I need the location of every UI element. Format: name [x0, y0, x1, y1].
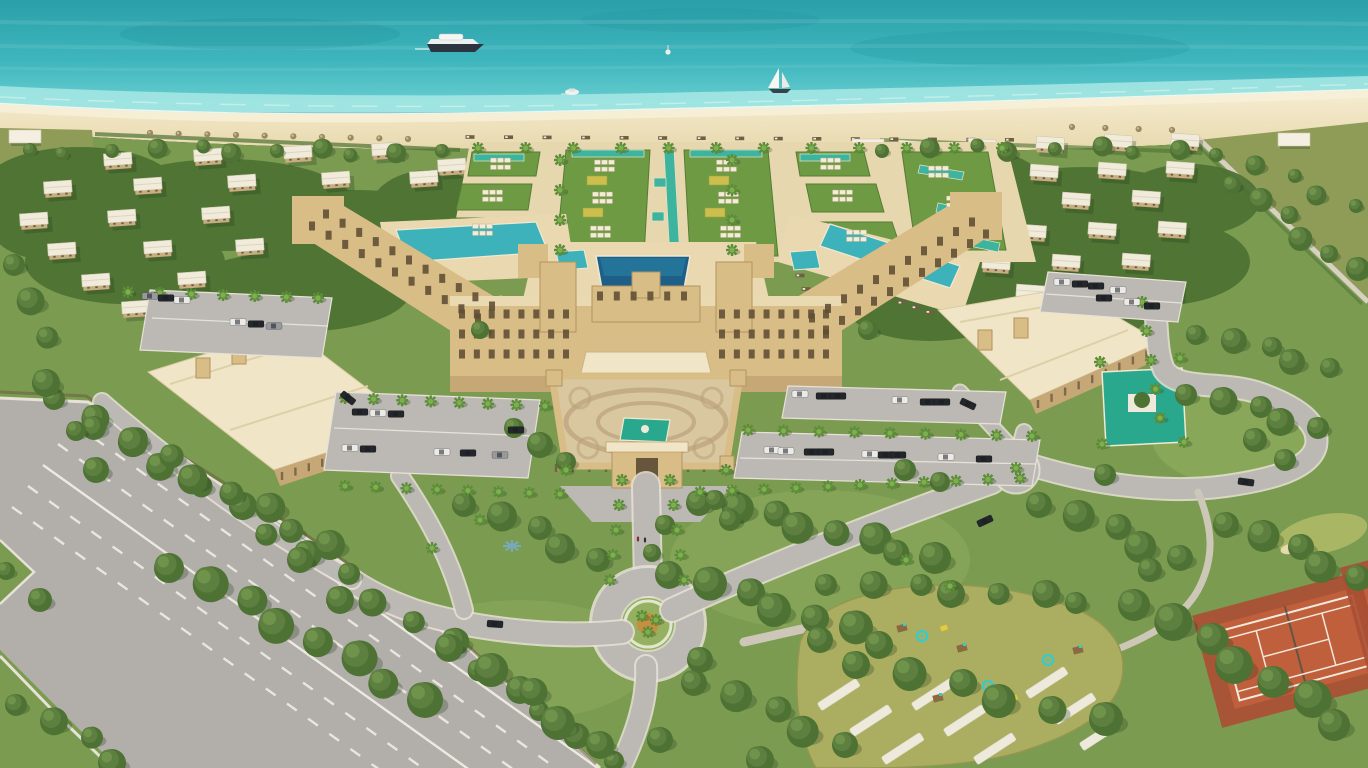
colonnade-column	[1064, 388, 1066, 396]
hotel-window	[734, 350, 740, 359]
hotel-window	[749, 350, 755, 359]
sunbed-cluster	[774, 137, 783, 141]
hotel-window	[841, 294, 847, 303]
flowerbed	[705, 208, 725, 217]
beach-umbrella	[204, 131, 210, 137]
car	[266, 323, 282, 330]
hotel-window	[597, 292, 603, 301]
sunbed-cluster	[620, 136, 629, 140]
car	[920, 399, 936, 406]
hotel-window	[533, 310, 539, 319]
car	[792, 391, 808, 398]
car	[1124, 299, 1140, 306]
colonnade-column	[1132, 356, 1134, 364]
car	[158, 295, 174, 302]
pedestrian	[637, 537, 639, 542]
car	[934, 399, 950, 406]
beach-umbrella	[147, 130, 153, 136]
car	[370, 410, 386, 417]
beach-umbrella	[1102, 125, 1108, 131]
hotel-window	[614, 292, 620, 301]
car	[1144, 303, 1160, 310]
axis-pool	[654, 178, 666, 187]
hotel-window	[309, 222, 315, 231]
colonnade-column	[294, 468, 296, 476]
hotel-window	[873, 275, 879, 284]
hotel-window	[855, 306, 861, 315]
wave-streak	[0, 46, 1368, 48]
colonnade-column	[1037, 400, 1039, 408]
sunbed-cluster	[926, 310, 935, 314]
villa	[1165, 161, 1198, 183]
car	[1072, 281, 1088, 288]
ballroom-tower	[196, 358, 210, 378]
beach-umbrella	[233, 132, 239, 138]
hotel-tower-east	[716, 262, 752, 332]
hotel-window	[887, 287, 893, 296]
flowerbed	[587, 176, 607, 185]
hotel-window	[719, 350, 725, 359]
hotel-window	[406, 256, 412, 265]
colonnade-column	[1091, 375, 1093, 383]
hotel-window	[749, 330, 755, 339]
hotel-window	[631, 292, 637, 301]
hotel-window	[518, 330, 524, 339]
colonnade-column	[321, 459, 323, 467]
hotel-window	[857, 285, 863, 294]
west-wing-pavilion	[292, 196, 344, 244]
courtyard-corner-tower	[546, 370, 562, 386]
hotel-window	[905, 256, 911, 265]
hotel-window	[953, 227, 959, 236]
villa	[1087, 222, 1120, 244]
hotel-window	[375, 258, 381, 267]
hotel-window	[504, 310, 510, 319]
hotel-window	[459, 330, 465, 339]
hotel-window	[423, 265, 429, 274]
hotel-window	[764, 330, 770, 339]
pedestrian	[644, 538, 646, 543]
hotel-window	[340, 219, 346, 228]
car	[230, 319, 246, 326]
axis-pool	[652, 212, 664, 221]
hotel-window	[392, 268, 398, 277]
beach-umbrella	[405, 136, 411, 142]
hotel-window	[839, 316, 845, 325]
colonnade-column	[1050, 394, 1052, 402]
car	[818, 449, 834, 456]
hotel-window	[793, 310, 799, 319]
hotel-window	[903, 278, 909, 287]
villa	[1061, 192, 1094, 214]
hotel-window	[489, 302, 495, 311]
sunbed-cluster	[697, 136, 706, 140]
hotel-window	[889, 266, 895, 275]
hotel-window	[967, 239, 973, 248]
hotel-window	[458, 304, 464, 313]
car	[1096, 295, 1112, 302]
hotel-window	[983, 230, 989, 239]
panel-pool	[572, 150, 644, 157]
hotel-window	[809, 314, 815, 323]
car	[976, 456, 992, 463]
hotel-window	[548, 330, 554, 339]
hotel-window	[489, 310, 495, 319]
hotel-window	[563, 350, 569, 359]
hotel-window	[778, 310, 784, 319]
car	[388, 411, 404, 418]
car	[342, 445, 358, 452]
island-tree	[1134, 392, 1150, 408]
beach-umbrella	[1069, 124, 1075, 130]
sunbed-cluster	[912, 306, 921, 310]
hotel-window	[937, 237, 943, 246]
hotel-window	[793, 350, 799, 359]
sunbed-cluster	[504, 135, 513, 139]
hotel-window	[439, 274, 445, 283]
car	[1054, 279, 1070, 286]
car	[890, 452, 906, 459]
hotel-window	[504, 350, 510, 359]
hotel-window	[764, 310, 770, 319]
hotel-window	[425, 286, 431, 295]
car	[892, 397, 908, 404]
hotel-window	[919, 268, 925, 277]
hotel-window	[823, 326, 829, 335]
hotel-window	[778, 330, 784, 339]
beach-umbrella	[176, 131, 182, 137]
car	[492, 452, 508, 459]
beach-umbrella	[290, 133, 296, 139]
hotel-window	[681, 292, 687, 301]
car	[434, 449, 450, 456]
hotel-window	[778, 350, 784, 359]
hotel-window	[823, 350, 829, 359]
hotel-window	[563, 330, 569, 339]
agave-plant	[503, 540, 521, 552]
hotel-window	[533, 330, 539, 339]
hotel-window	[326, 231, 332, 240]
hotel-window	[825, 304, 831, 313]
car	[862, 451, 878, 458]
hotel-window	[921, 246, 927, 255]
sunbed-cluster	[796, 274, 805, 278]
villa	[1131, 190, 1164, 212]
car	[460, 450, 476, 457]
hotel-window	[518, 350, 524, 359]
hotel-window	[808, 350, 814, 359]
sunbed-cluster	[543, 136, 552, 140]
ballroom-tower	[1014, 318, 1028, 338]
hotel-window	[533, 350, 539, 359]
hotel-window	[356, 228, 362, 237]
resort-aerial-rendering: Aerial 3D rendering of a beachfront hote…	[0, 0, 1368, 768]
villa	[1157, 221, 1190, 243]
flowerbed	[583, 208, 603, 217]
hotel-window	[969, 218, 975, 227]
hotel-window	[459, 350, 465, 359]
hotel-window	[951, 249, 957, 258]
beach-umbrella	[262, 133, 268, 139]
hotel-window	[518, 310, 524, 319]
gatehouse-roof	[606, 442, 688, 452]
sunbed-cluster	[658, 136, 667, 140]
colonnade-column	[1077, 381, 1079, 389]
sunbed-cluster	[889, 137, 898, 141]
car	[830, 393, 846, 400]
hotel-window	[373, 237, 379, 246]
villa	[1121, 253, 1154, 275]
car	[1110, 287, 1126, 294]
beach-pavilion	[9, 130, 41, 146]
panel-pool	[690, 150, 762, 157]
east-kids-pool	[790, 250, 820, 270]
sunbed-cluster	[1005, 138, 1014, 142]
sunbed-cluster	[581, 136, 590, 140]
sunbed-cluster	[735, 137, 744, 141]
hotel-window	[647, 292, 653, 301]
hotel-tower-west	[540, 262, 576, 332]
fountain-ornament	[641, 425, 649, 433]
car	[248, 321, 264, 328]
villa	[1097, 162, 1130, 184]
sunbed-cluster	[898, 301, 907, 305]
hotel-window	[548, 310, 554, 319]
beach-umbrella	[1169, 127, 1175, 133]
car	[508, 427, 524, 434]
car	[352, 409, 368, 416]
car	[764, 447, 780, 454]
hotel-window	[749, 310, 755, 319]
courtyard-corner-tower	[730, 370, 746, 386]
hotel-window	[409, 277, 415, 286]
car	[360, 446, 376, 453]
hotel-window	[504, 330, 510, 339]
beach-umbrella	[376, 135, 382, 141]
villa	[1029, 164, 1062, 186]
sunbed-cluster	[812, 137, 821, 141]
car	[816, 393, 832, 400]
hotel-window	[764, 350, 770, 359]
hotel-window	[935, 258, 941, 267]
car	[778, 448, 794, 455]
beach-umbrella	[348, 135, 354, 141]
hotel-window	[793, 330, 799, 339]
colonnade-column	[308, 463, 310, 471]
car	[142, 293, 158, 300]
hotel-window	[389, 246, 395, 255]
hotel-window	[474, 350, 480, 359]
car	[804, 449, 820, 456]
ballroom-tower	[978, 330, 992, 350]
sunbed-cluster	[466, 135, 475, 139]
car	[487, 620, 503, 628]
car	[938, 454, 954, 461]
beach-pavilion	[1278, 133, 1310, 149]
colonnade-column	[1118, 363, 1120, 371]
hotel-window	[734, 310, 740, 319]
hotel-window	[548, 350, 554, 359]
beach-umbrella	[1136, 126, 1142, 132]
hotel-window	[719, 330, 725, 339]
hotel-window	[808, 330, 814, 339]
hotel-window	[456, 283, 462, 292]
hotel-window	[472, 292, 478, 301]
hotel-window	[719, 310, 725, 319]
flowerbed	[709, 176, 729, 185]
hotel-window	[342, 240, 348, 249]
hotel-window	[442, 295, 448, 304]
hotel-window	[489, 350, 495, 359]
hotel-window	[359, 249, 365, 258]
hotel-window	[323, 210, 329, 219]
hotel-window	[871, 297, 877, 306]
colonnade-column	[281, 472, 283, 480]
hotel-window	[664, 292, 670, 301]
hotel-window	[734, 330, 740, 339]
car	[1088, 283, 1104, 290]
car	[174, 297, 190, 304]
hotel-window	[563, 310, 569, 319]
